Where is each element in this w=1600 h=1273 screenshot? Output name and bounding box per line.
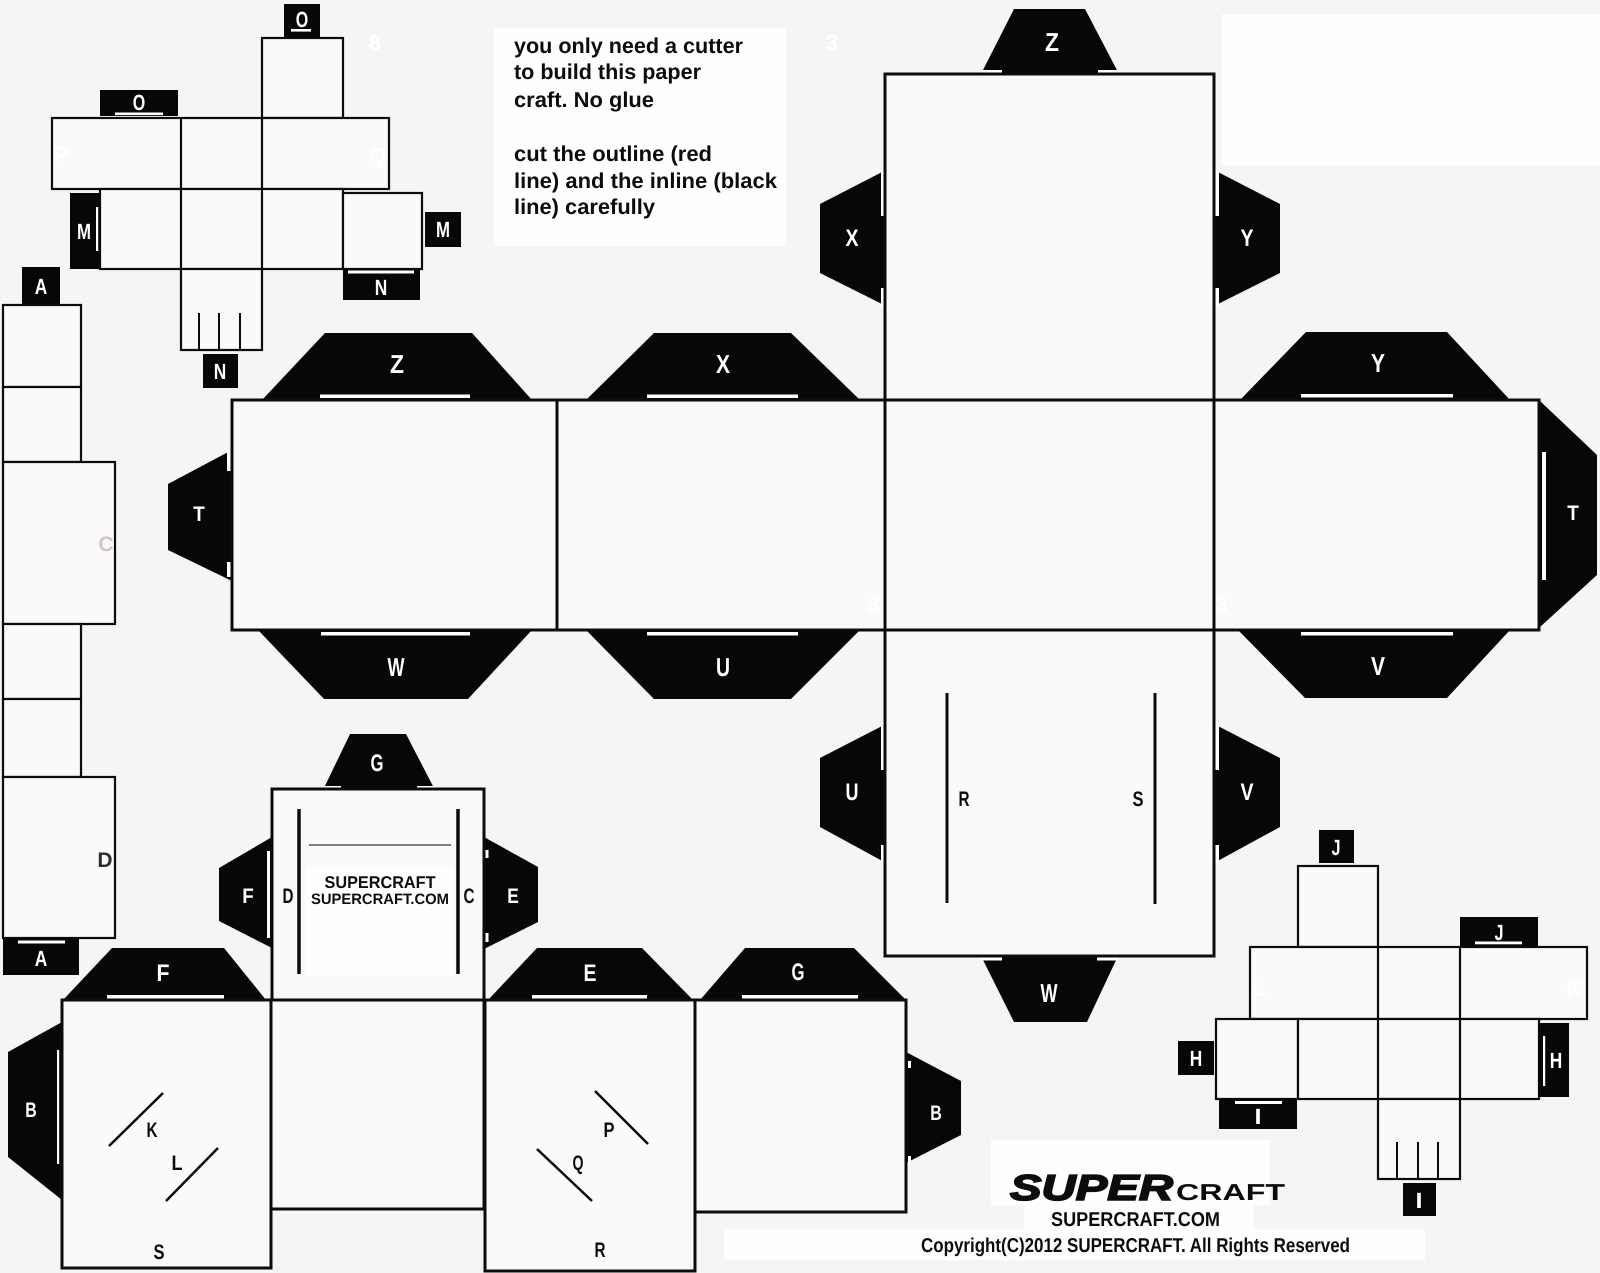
svg-text:line) and the inline (black: line) and the inline (black (514, 169, 777, 193)
svg-text:F: F (242, 885, 254, 908)
svg-text:Copyright(C)2012 SUPERCRAFT. A: Copyright(C)2012 SUPERCRAFT. All Rights … (921, 1235, 1350, 1257)
svg-text:SUPERCRAFT: SUPERCRAFT (325, 873, 437, 892)
svg-text:D: D (97, 849, 112, 872)
svg-text:B: B (930, 1102, 942, 1125)
svg-text:T: T (193, 503, 205, 526)
svg-text:SUPERCRAFT.COM: SUPERCRAFT.COM (311, 891, 449, 908)
svg-text:F: F (157, 960, 170, 987)
svg-text:S: S (154, 1241, 165, 1264)
svg-text:M: M (436, 217, 450, 242)
svg-text:O: O (133, 90, 146, 115)
svg-text:U: U (716, 652, 730, 682)
svg-text:C: C (98, 533, 113, 556)
svg-text:SUPER: SUPER (1010, 1167, 1173, 1208)
svg-text:Q: Q (369, 143, 386, 168)
svg-text:V: V (1371, 651, 1386, 681)
svg-text:V: V (1241, 779, 1254, 806)
svg-text:X: X (716, 349, 731, 379)
svg-text:H: H (1190, 1046, 1203, 1071)
svg-text:J: J (1495, 920, 1504, 945)
svg-text:cut the outline (red: cut the outline (red (514, 142, 712, 166)
svg-text:M: M (77, 219, 91, 244)
svg-text:L: L (172, 1152, 183, 1175)
svg-text:L: L (1252, 976, 1265, 1001)
svg-text:P: P (604, 1119, 615, 1142)
svg-text:N: N (214, 359, 227, 384)
svg-text:CRAFT: CRAFT (1176, 1179, 1285, 1205)
svg-text:N: N (375, 275, 388, 300)
svg-text:8: 8 (369, 30, 381, 55)
svg-text:to build this paper: to build this paper (514, 60, 702, 84)
svg-text:R: R (595, 1239, 606, 1262)
svg-text:R: R (959, 788, 970, 811)
svg-text:A: A (35, 274, 48, 299)
svg-text:W: W (388, 652, 405, 682)
svg-text:Y: Y (1371, 348, 1385, 378)
svg-text:I: I (1255, 1104, 1262, 1129)
svg-text:G: G (792, 959, 805, 986)
svg-text:J: J (1332, 835, 1341, 860)
svg-text:SUPERCRAFT.COM: SUPERCRAFT.COM (1051, 1209, 1220, 1231)
svg-text:Q: Q (573, 1152, 584, 1175)
svg-text:Y: Y (1241, 225, 1254, 252)
svg-text:H: H (1550, 1048, 1563, 1073)
svg-text:3: 3 (826, 30, 838, 55)
svg-text:X: X (846, 225, 859, 252)
svg-text:E: E (507, 885, 519, 908)
svg-text:K: K (1566, 976, 1582, 1001)
svg-text:Z: Z (390, 349, 404, 379)
svg-text:8: 8 (867, 592, 879, 617)
svg-text:C: C (464, 885, 475, 908)
svg-text:E: E (584, 960, 597, 987)
svg-text:T: T (1567, 502, 1579, 525)
svg-text:line) carefully: line) carefully (514, 195, 655, 219)
svg-text:S: S (1133, 788, 1144, 811)
svg-text:W: W (1041, 978, 1058, 1008)
svg-text:I: I (1416, 1188, 1423, 1213)
svg-text:G: G (371, 750, 384, 777)
svg-text:D: D (283, 885, 294, 908)
svg-text:A: A (35, 946, 48, 971)
svg-text:O: O (296, 7, 309, 32)
svg-text:you only need a cutter: you only need a cutter (514, 34, 744, 58)
svg-text:Z: Z (1045, 27, 1059, 57)
svg-text:U: U (846, 779, 859, 806)
svg-text:K: K (147, 1119, 158, 1142)
svg-text:B: B (25, 1099, 37, 1122)
svg-text:craft. No glue: craft. No glue (514, 88, 654, 112)
svg-text:3: 3 (1216, 592, 1228, 617)
svg-text:P: P (54, 142, 69, 167)
